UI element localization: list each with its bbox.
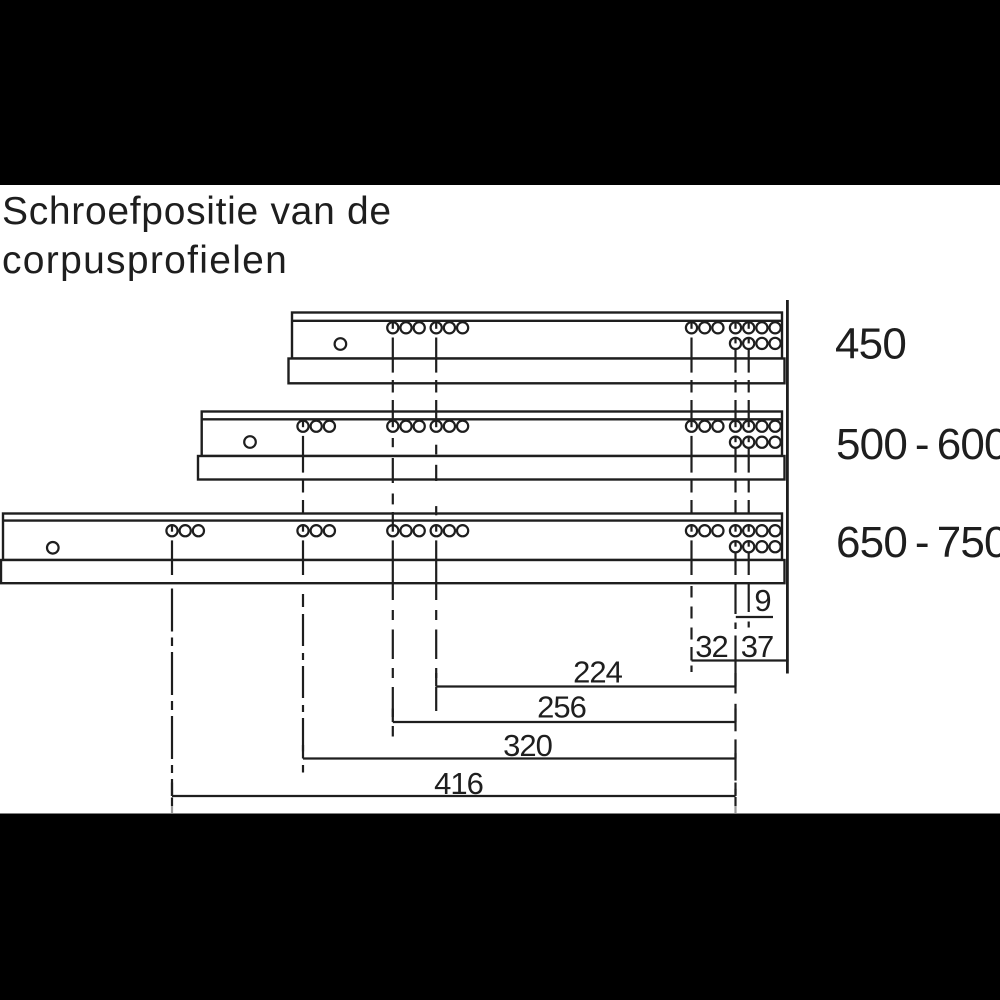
svg-text:450: 450	[835, 320, 906, 369]
svg-text:256: 256	[537, 690, 586, 725]
svg-text:320: 320	[503, 728, 552, 763]
svg-text:37: 37	[741, 629, 773, 664]
svg-text:9: 9	[754, 583, 770, 618]
svg-text:224: 224	[573, 655, 622, 690]
svg-text:650 - 750: 650 - 750	[836, 518, 1000, 567]
svg-text:32: 32	[695, 629, 727, 664]
svg-text:Schroefpositie van de: Schroefpositie van de	[2, 190, 392, 233]
svg-text:500 - 600: 500 - 600	[836, 420, 1000, 469]
svg-text:corpusprofielen: corpusprofielen	[2, 239, 288, 282]
svg-text:416: 416	[434, 766, 483, 801]
